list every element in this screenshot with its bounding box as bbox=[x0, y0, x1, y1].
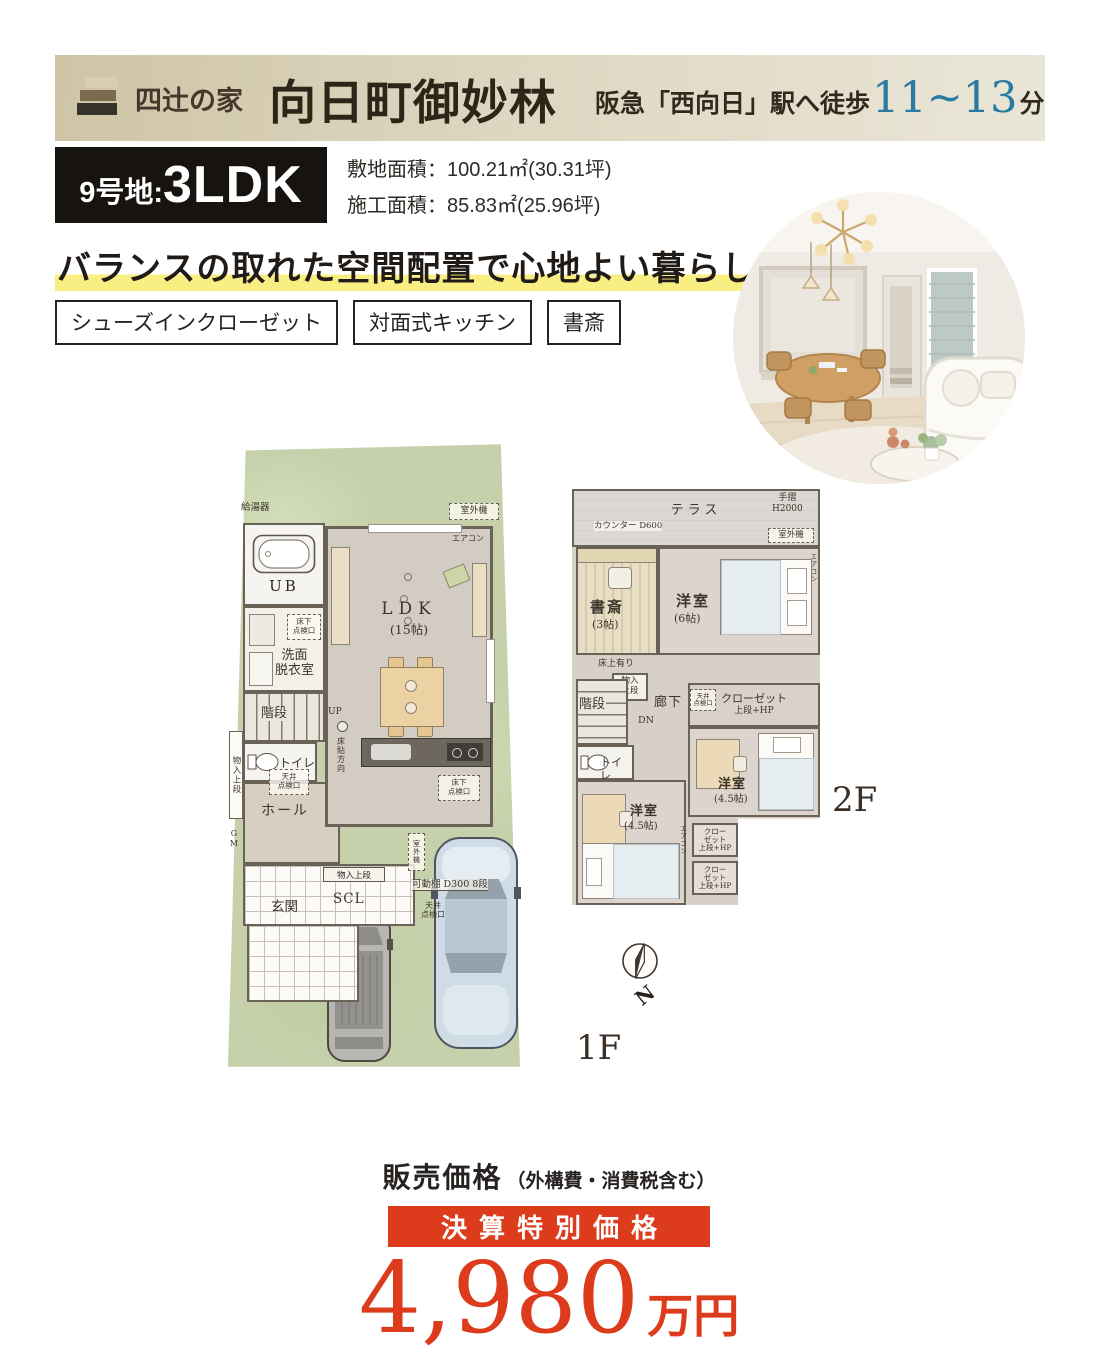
plan-type: 3LDK bbox=[163, 155, 303, 215]
label-terrace: テラス bbox=[671, 503, 722, 518]
room-washroom: 床下 点検口 洗面 脱衣室 bbox=[243, 606, 325, 692]
area-info: 敷地面積：100.21㎡(30.31坪) 施工面積：85.83㎡(25.96坪) bbox=[347, 152, 612, 224]
ceiling-light-dot bbox=[404, 573, 412, 581]
label-ldk-size: (15帖) bbox=[328, 619, 490, 638]
kitchen-sink-icon bbox=[371, 744, 411, 760]
access-suffix: 分 bbox=[1019, 84, 1044, 120]
unit-badge: 9号地: 3LDK bbox=[55, 147, 327, 223]
header-banner: 四辻の家 向日町御妙林 阪急「西向日」駅へ徒歩 11~13 分 bbox=[55, 55, 1045, 141]
entrance-porch bbox=[247, 926, 359, 1002]
price-amount-row: 4,980 万円 bbox=[0, 1247, 1098, 1353]
plate-icon bbox=[405, 702, 417, 714]
outdoor-unit-top: 室外機 bbox=[449, 503, 499, 520]
room-bedroom45-right: 洋室 (4.5帖) bbox=[688, 727, 820, 817]
logo-bar-mid bbox=[80, 90, 116, 101]
logo-bar-top bbox=[85, 77, 118, 88]
blanket-icon bbox=[613, 844, 679, 899]
vanity-icon bbox=[249, 652, 273, 686]
burner-icon bbox=[468, 748, 478, 758]
pillow-icon bbox=[787, 568, 807, 594]
construction-area: 施工面積：85.83㎡(25.96坪) bbox=[347, 188, 612, 224]
bed-icon-45r bbox=[758, 733, 814, 811]
study-counter-icon bbox=[578, 549, 656, 563]
price-label: 販売価格 bbox=[382, 1156, 502, 1196]
price-block: 販売価格 （外構費・消費税含む） 決算特別価格 4,980 万円 bbox=[0, 1156, 1098, 1353]
label-bedroom45l: 洋室 bbox=[630, 804, 658, 819]
room-entrance-scl: 物入上段 SCL 玄関 bbox=[243, 864, 415, 926]
site-area: 敷地面積：100.21㎡(30.31坪) bbox=[347, 152, 612, 188]
label-entrance: 玄関 bbox=[271, 900, 298, 916]
label-ldk-group: LDK (15帖) bbox=[328, 599, 490, 638]
underfloor-hatch-2: 床下 点検口 bbox=[438, 775, 480, 801]
label-closet-small-2: クロー ゼット 上段+HP bbox=[699, 866, 732, 891]
floor-direction-circle bbox=[337, 721, 348, 732]
label-counter: カウンター D600 bbox=[594, 521, 662, 531]
logo-bar-bottom bbox=[77, 103, 117, 115]
label-closet-small-1: クロー ゼット 上段+HP bbox=[699, 828, 732, 853]
label-bedroom45r-size: (4.5帖) bbox=[714, 794, 748, 806]
label-hall: ホール bbox=[261, 803, 309, 820]
label-shelf: 可動棚 D300 8段 bbox=[412, 879, 488, 891]
compass-north-letter: N bbox=[630, 980, 659, 1010]
kitchen-counter bbox=[361, 738, 491, 767]
lot-number: 9号地: bbox=[79, 169, 163, 211]
interior-photo bbox=[733, 192, 1025, 484]
label-floor-direction: 床貼方向 bbox=[336, 737, 345, 773]
brand-logo-icon bbox=[75, 75, 121, 119]
label-2f: 2F bbox=[832, 780, 877, 820]
label-bedroom6: 洋室 bbox=[676, 593, 710, 611]
label-raised-floor: 床上有り bbox=[598, 659, 634, 670]
blanket-icon bbox=[721, 560, 781, 635]
label-scl: SCL bbox=[333, 892, 365, 908]
label-aircon-1f: エアコン bbox=[452, 534, 484, 543]
label-study-size: (3帖) bbox=[592, 619, 619, 632]
access-minutes: 11~13 bbox=[872, 73, 1017, 123]
label-gm: GM bbox=[229, 829, 238, 849]
room-ub: UB bbox=[243, 523, 325, 606]
price-heading-row: 販売価格 （外構費・消費税含む） bbox=[0, 1156, 1098, 1196]
room-closet-small-2: クロー ゼット 上段+HP bbox=[692, 861, 738, 895]
floorplan-2f: テラス カウンター D600 手摺 H2000 室外機 書斎 (3帖) 洋室 (… bbox=[568, 483, 826, 928]
bathtub-icon bbox=[252, 534, 316, 574]
lounge-chair-icon bbox=[442, 563, 470, 588]
outdoor-unit-2f: 室外機 bbox=[768, 528, 814, 543]
label-ub: UB bbox=[269, 577, 299, 595]
room-toilet-2f: トイレ bbox=[576, 745, 634, 780]
ceiling-hatch-2f: 天井 点検口 bbox=[690, 689, 716, 711]
label-washroom: 洗面 脱衣室 bbox=[275, 648, 314, 679]
headline-wrap: バランスの取れた空間配置で心地よい暮らし bbox=[55, 241, 762, 290]
label-closet: クローゼット bbox=[721, 693, 787, 706]
access-prefix: 阪急「西向日」駅へ徒歩 bbox=[595, 84, 870, 120]
label-stairs-2f: 階段 bbox=[578, 697, 606, 712]
outdoor-unit-side: 室外機 bbox=[408, 833, 425, 871]
study-chair-icon bbox=[608, 567, 632, 589]
pillow-icon bbox=[773, 737, 801, 753]
label-bedroom45r: 洋室 bbox=[718, 777, 746, 792]
feature-tags: シューズインクローゼット 対面式キッチン 書斎 bbox=[55, 300, 621, 345]
bed-icon-45l bbox=[582, 843, 680, 899]
blanket-icon bbox=[759, 758, 814, 810]
room-bedroom6: 洋室 (6帖) エアコン bbox=[658, 547, 820, 655]
price-amount-unit: 万円 bbox=[647, 1280, 739, 1346]
dining-table-icon bbox=[380, 667, 444, 727]
compass-icon: N bbox=[613, 938, 669, 1022]
label-aircon-2f-right: エアコン bbox=[808, 553, 816, 583]
price-label-note: （外構費・消費税含む） bbox=[507, 1166, 716, 1193]
washer-icon bbox=[249, 614, 275, 646]
feature-tag-shoes-closet: シューズインクローゼット bbox=[55, 300, 338, 345]
label-stairs-1f: 階段 bbox=[259, 706, 289, 721]
label-bedroom45l-size: (4.5帖) bbox=[624, 821, 658, 833]
label-1f: 1F bbox=[576, 1028, 621, 1068]
chair-icon bbox=[388, 726, 404, 737]
label-aircon-2f-mid: エアコン bbox=[678, 825, 686, 855]
price-amount: 4,980 bbox=[359, 1247, 640, 1353]
plate-icon bbox=[405, 680, 417, 692]
window-top bbox=[368, 524, 462, 533]
interior-photo-illustration bbox=[733, 192, 1025, 484]
label-ceiling-hatch-porch: 天井 点検口 bbox=[421, 901, 445, 920]
headline: バランスの取れた空間配置で心地よい暮らし bbox=[55, 250, 762, 291]
ceiling-hatch-hall: 天井 点検口 bbox=[269, 769, 309, 795]
storage-box-entrance: 物入上段 bbox=[323, 867, 385, 882]
price-banner: 決算特別価格 bbox=[388, 1206, 710, 1247]
chair-icon bbox=[417, 726, 433, 737]
station-access: 阪急「西向日」駅へ徒歩 11~13 分 bbox=[595, 73, 1045, 123]
feature-tag-study: 書斎 bbox=[547, 300, 621, 345]
pillow-icon bbox=[787, 600, 807, 626]
pillow-icon bbox=[586, 858, 602, 886]
label-handrail: 手摺 H2000 bbox=[772, 493, 803, 514]
burner-icon bbox=[452, 748, 462, 758]
label-outdoor-unit-side: 室外機 bbox=[412, 840, 420, 864]
room-ldk: エアコン LDK (15帖) 床貼方向 bbox=[325, 526, 493, 827]
chair-icon bbox=[388, 657, 404, 668]
property-title: 向日町御妙林 bbox=[269, 64, 557, 133]
label-storage-entrance: 物入上段 bbox=[337, 869, 371, 881]
label-storage-left: 物入上段 bbox=[231, 756, 241, 794]
kitchen-stove-icon bbox=[447, 743, 483, 761]
feature-tag-kitchen: 対面式キッチン bbox=[353, 300, 532, 345]
room-closet-small-1: クロー ゼット 上段+HP bbox=[692, 823, 738, 857]
bed-icon-6j bbox=[720, 559, 812, 635]
room-bedroom45-left: 洋室 (4.5帖) bbox=[576, 780, 686, 905]
label-bedroom6-size: (6帖) bbox=[674, 613, 701, 626]
storage-strip: 物入上段 bbox=[229, 731, 243, 819]
car-sedan-icon bbox=[431, 835, 521, 1051]
chair-icon bbox=[417, 657, 433, 668]
label-ldk: LDK bbox=[328, 599, 490, 619]
window-right bbox=[486, 639, 495, 703]
label-study: 書斎 bbox=[590, 599, 624, 617]
desk-icon bbox=[582, 794, 626, 844]
label-water-heater: 給湯器 bbox=[241, 502, 270, 513]
label-corridor: 廊下 bbox=[654, 695, 682, 710]
desk-chair-icon bbox=[733, 756, 747, 772]
brand-name: 四辻の家 bbox=[135, 79, 243, 118]
label-closet-sub: 上段+HP bbox=[734, 706, 773, 717]
underfloor-hatch-1: 床下 点検口 bbox=[287, 614, 321, 640]
label-dn: DN bbox=[638, 715, 654, 726]
flyer-page: 四辻の家 向日町御妙林 阪急「西向日」駅へ徒歩 11~13 分 9号地: 3LD… bbox=[0, 0, 1098, 1368]
floorplan-1f: 給湯器 室外機 UB 床下 点検口 洗面 脱衣室 階段 UP bbox=[225, 443, 520, 1068]
label-up: UP bbox=[328, 707, 342, 718]
room-study: 書斎 (3帖) bbox=[576, 547, 658, 655]
